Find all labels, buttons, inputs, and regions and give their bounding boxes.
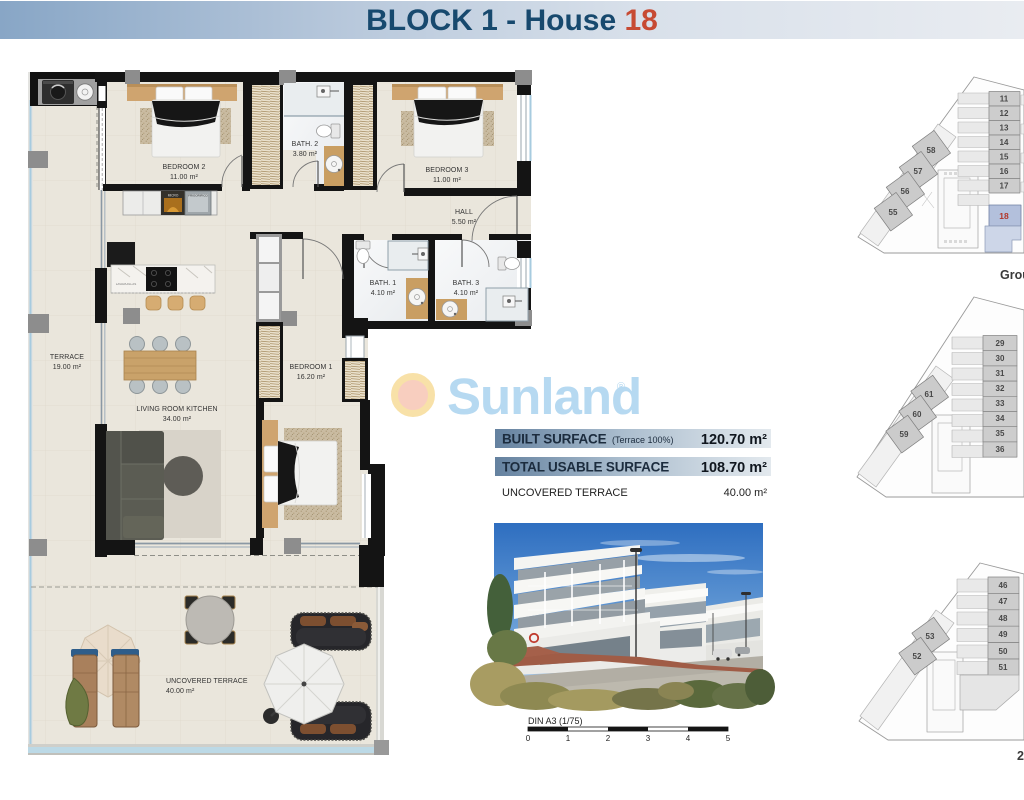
svg-text:46: 46 (999, 581, 1008, 590)
svg-text:52: 52 (913, 652, 922, 661)
svg-text:120.70 m²: 120.70 m² (701, 432, 767, 448)
svg-text:40.00 m²: 40.00 m² (166, 688, 195, 695)
svg-text:108.70 m²: 108.70 m² (701, 460, 767, 476)
svg-text:18: 18 (999, 211, 1009, 221)
svg-text:0: 0 (526, 734, 531, 743)
svg-text:33: 33 (996, 399, 1005, 408)
svg-text:58: 58 (927, 146, 936, 155)
svg-text:59: 59 (900, 430, 909, 439)
svg-text:13: 13 (1000, 124, 1009, 133)
svg-text:®: ® (617, 381, 625, 393)
svg-text:19.00 m²: 19.00 m² (53, 364, 82, 371)
svg-text:TERRACE: TERRACE (50, 354, 84, 361)
svg-text:BATH. 3: BATH. 3 (453, 280, 480, 287)
svg-text:40.00 m²: 40.00 m² (724, 487, 768, 499)
svg-text:FRIGORIFICO: FRIGORIFICO (188, 194, 208, 198)
svg-text:5.50 m²: 5.50 m² (452, 219, 477, 226)
svg-text:BEDROOM 1: BEDROOM 1 (290, 364, 333, 371)
svg-text:49: 49 (999, 630, 1008, 639)
svg-text:32: 32 (996, 384, 1005, 393)
svg-text:UNCOVERED TERRACE: UNCOVERED TERRACE (166, 678, 248, 685)
svg-text:2nd: 2nd (1017, 749, 1024, 763)
svg-text:12: 12 (1000, 109, 1009, 118)
svg-text:61: 61 (925, 390, 934, 399)
svg-text:14: 14 (1000, 138, 1009, 147)
svg-text:4.10 m²: 4.10 m² (371, 290, 396, 297)
svg-text:11.00 m²: 11.00 m² (433, 177, 461, 184)
svg-text:36: 36 (996, 445, 1005, 454)
svg-text:53: 53 (926, 632, 935, 641)
svg-text:5: 5 (726, 734, 731, 743)
svg-text:51: 51 (999, 663, 1008, 672)
svg-text:50: 50 (999, 647, 1008, 656)
svg-text:BEDROOM 3: BEDROOM 3 (426, 167, 469, 174)
svg-text:BATH. 1: BATH. 1 (370, 280, 397, 287)
svg-text:11: 11 (1000, 95, 1009, 104)
svg-text:Ground: Ground (1000, 268, 1024, 282)
svg-text:4.10 m²: 4.10 m² (454, 290, 479, 297)
svg-text:2: 2 (606, 734, 611, 743)
svg-text:3: 3 (646, 734, 651, 743)
svg-text:3.80 m²: 3.80 m² (293, 151, 318, 158)
svg-text:34: 34 (996, 414, 1005, 423)
svg-text:31: 31 (996, 369, 1005, 378)
svg-text:1: 1 (566, 734, 571, 743)
svg-text:BUILT SURFACE: BUILT SURFACE (502, 432, 607, 447)
svg-text:60: 60 (913, 410, 922, 419)
svg-text:BEDROOM 2: BEDROOM 2 (163, 164, 206, 171)
svg-text:48: 48 (999, 614, 1008, 623)
svg-text:Sunland: Sunland (447, 368, 641, 425)
svg-text:15: 15 (1000, 153, 1009, 162)
svg-text:35: 35 (996, 429, 1005, 438)
svg-text:29: 29 (996, 339, 1005, 348)
svg-text:47: 47 (999, 597, 1008, 606)
svg-text:LIVING ROOM KITCHEN: LIVING ROOM KITCHEN (136, 406, 217, 413)
svg-text:30: 30 (996, 354, 1005, 363)
svg-text:UNCOVERED TERRACE: UNCOVERED TERRACE (502, 487, 628, 499)
svg-text:DIN A3 (1/75): DIN A3 (1/75) (528, 716, 583, 726)
svg-text:55: 55 (889, 208, 898, 217)
svg-text:16.20 m²: 16.20 m² (297, 374, 326, 381)
svg-text:BATH. 2: BATH. 2 (292, 141, 319, 148)
svg-text:16: 16 (1000, 167, 1009, 176)
svg-text:57: 57 (914, 167, 923, 176)
svg-text:4: 4 (686, 734, 691, 743)
svg-text:BLOCK 1 - House 18: BLOCK 1 - House 18 (366, 4, 658, 37)
svg-text:MICRO: MICRO (168, 194, 179, 198)
svg-text:LAVAVAJILLAS: LAVAVAJILLAS (116, 282, 136, 286)
svg-text:HALL: HALL (455, 209, 473, 216)
svg-text:34.00 m²: 34.00 m² (163, 416, 192, 423)
svg-text:TOTAL USABLE SURFACE: TOTAL USABLE SURFACE (502, 460, 669, 475)
svg-text:17: 17 (1000, 182, 1009, 191)
svg-text:(Terrace 100%): (Terrace 100%) (612, 435, 674, 445)
svg-text:56: 56 (901, 187, 910, 196)
svg-text:11.00 m²: 11.00 m² (170, 174, 198, 181)
